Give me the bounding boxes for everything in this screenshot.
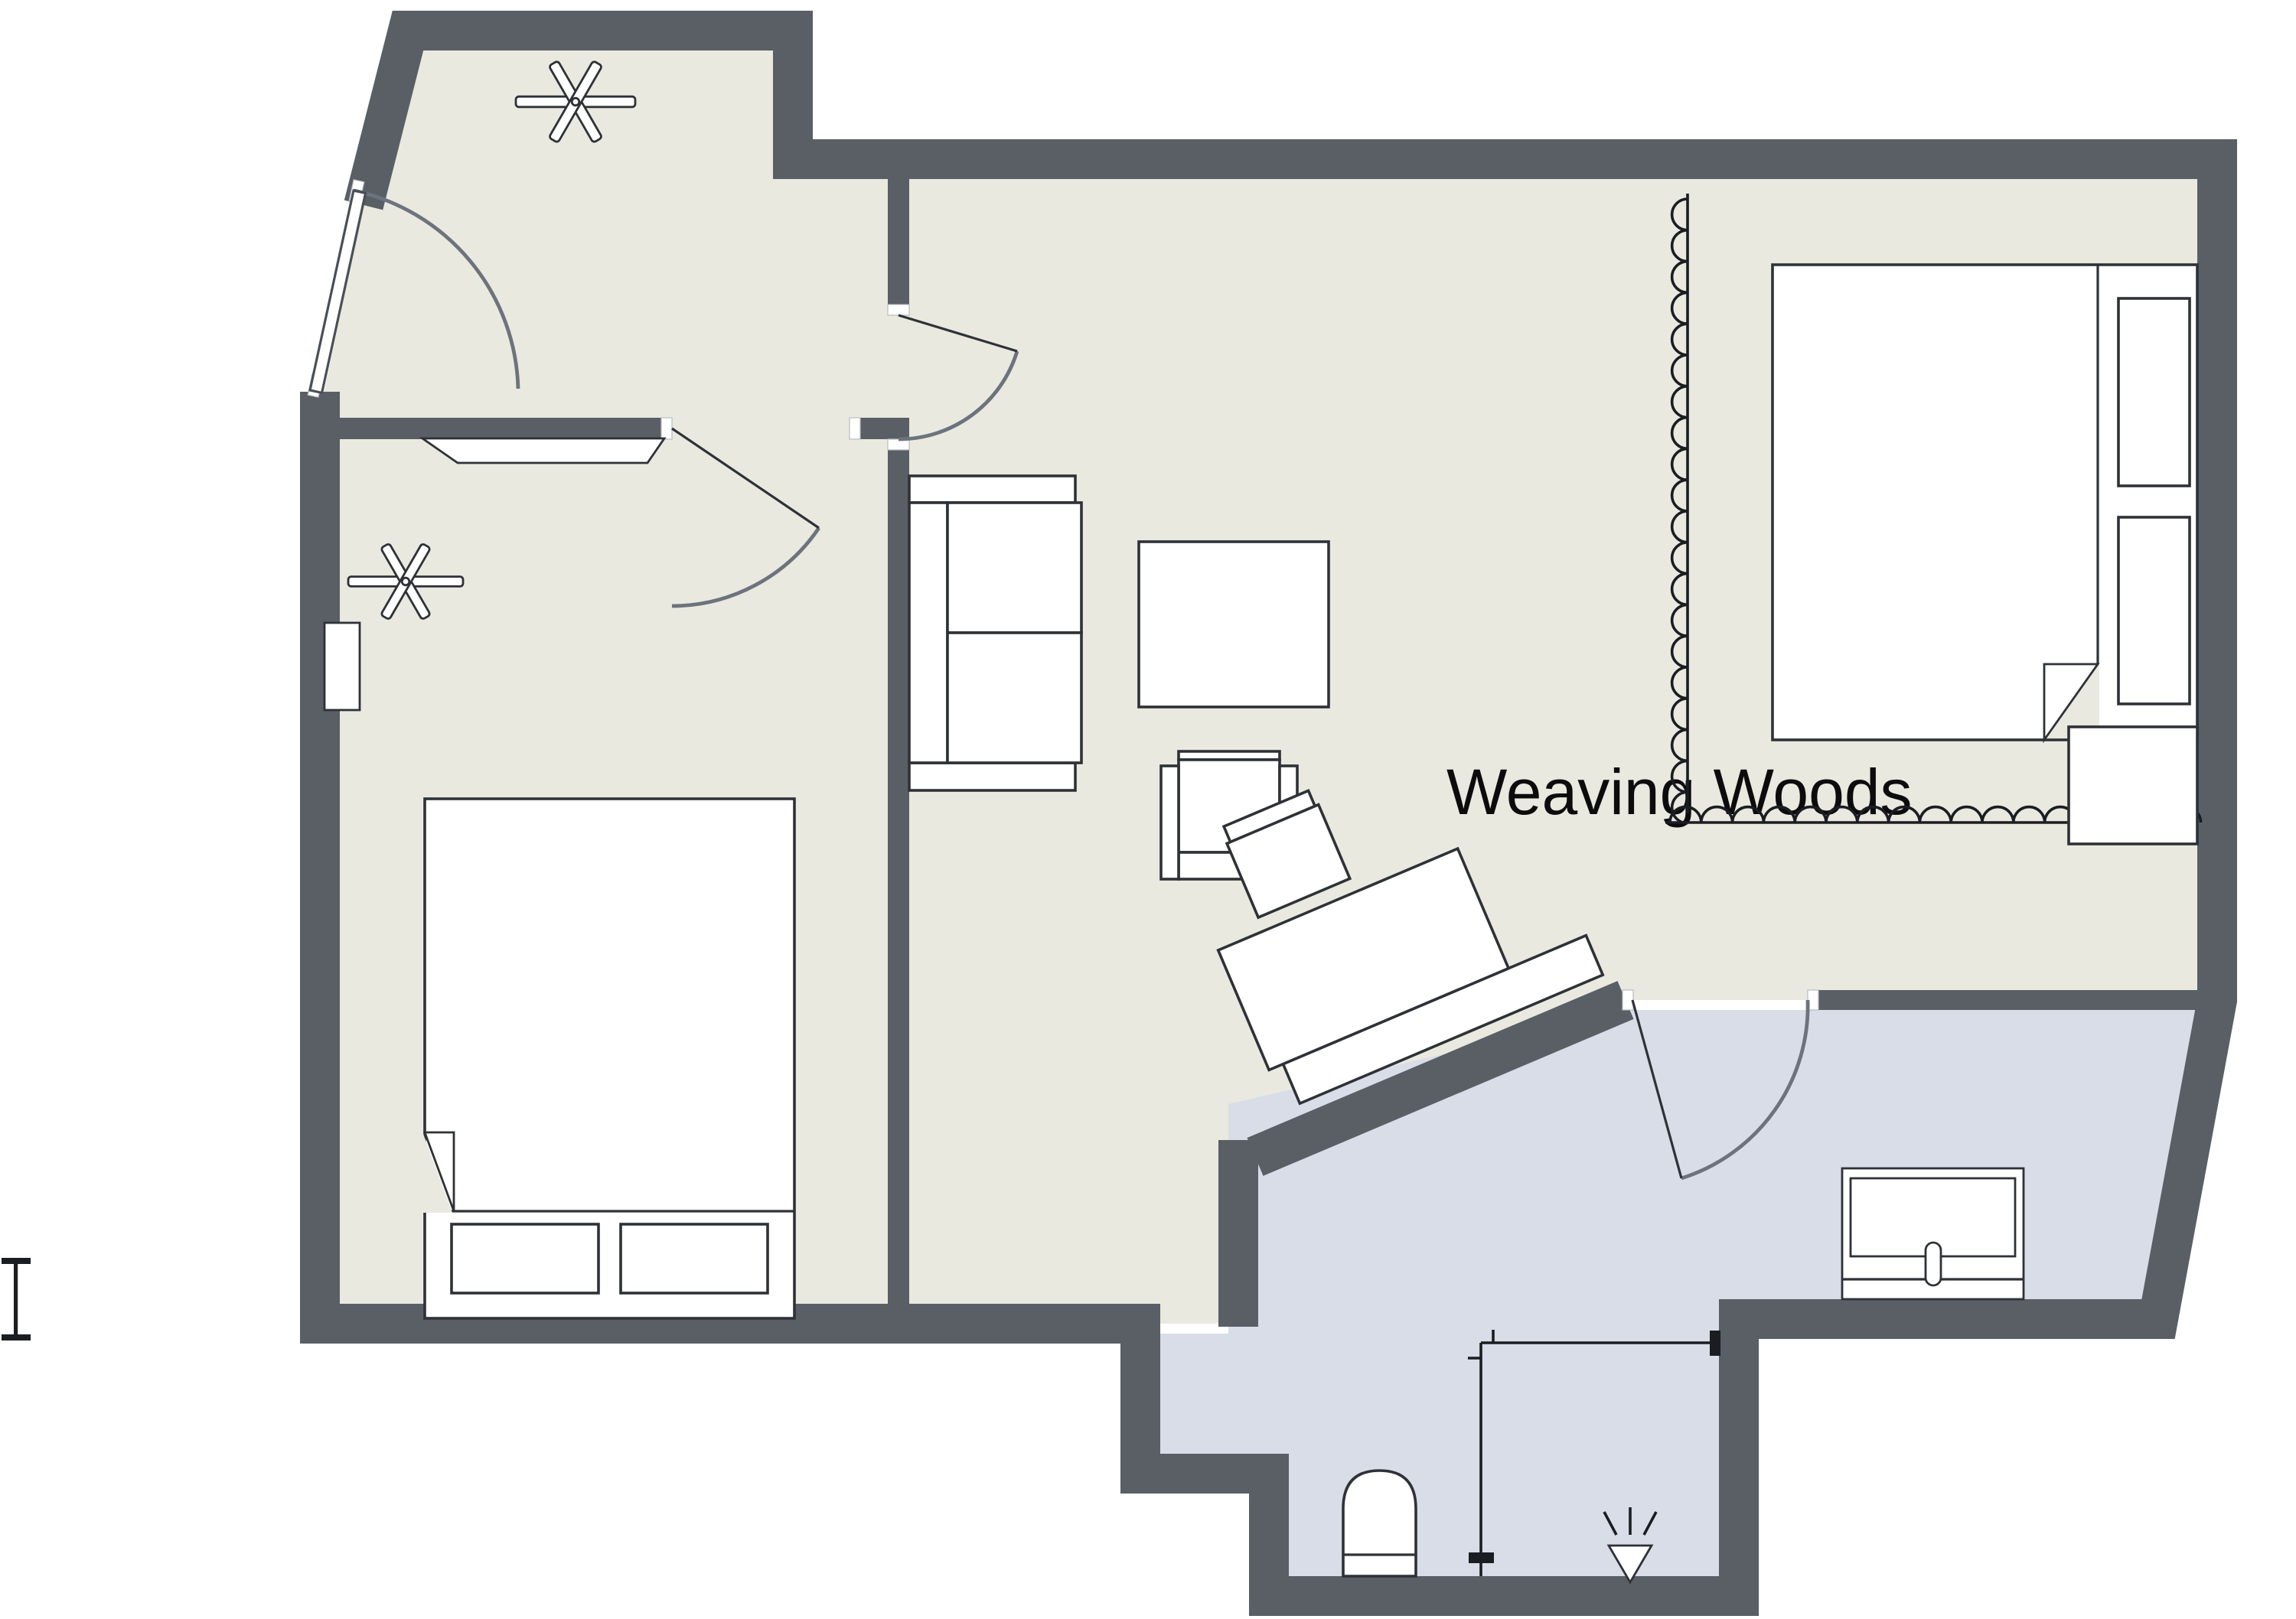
double-bed-left <box>423 799 794 1318</box>
toilet-icon <box>1343 1471 1416 1576</box>
sofa-backrest <box>909 503 947 763</box>
pillow <box>2118 517 2190 704</box>
pillow <box>452 1224 598 1293</box>
window-shelf <box>422 438 664 463</box>
sofa-armrest <box>909 763 1075 790</box>
bedroom-door-jamb-left <box>661 418 672 439</box>
dresser-handle <box>1926 1243 1941 1285</box>
sofa-seat <box>947 633 1081 763</box>
bath-door-jamb-left <box>1623 990 1633 1010</box>
wall-window-panel <box>325 623 360 710</box>
double-bed-right <box>1773 265 2197 740</box>
hall-door-jamb-top <box>888 305 909 315</box>
glass-panel-end <box>1710 1331 1720 1356</box>
pillow <box>2118 298 2190 486</box>
glass-panel-end <box>1469 1552 1494 1563</box>
armchair-armrest <box>1161 766 1179 879</box>
dresser <box>1842 1168 2024 1299</box>
coffee-table <box>1139 542 1329 707</box>
sofa <box>909 476 1081 790</box>
sofa-armrest <box>909 476 1075 503</box>
pillow <box>621 1224 768 1293</box>
sofa-seat <box>947 503 1081 633</box>
apartment-name-label: Weaving Woods <box>1446 756 1913 828</box>
floor-plan-stage: Weaving Woods <box>0 0 2296 1619</box>
floor-plan-canvas: Weaving Woods <box>0 0 2296 1619</box>
bedroom-door-jamb-right <box>850 418 860 439</box>
section-marker-icon <box>2 1258 31 1340</box>
nightstand <box>2069 727 2197 844</box>
